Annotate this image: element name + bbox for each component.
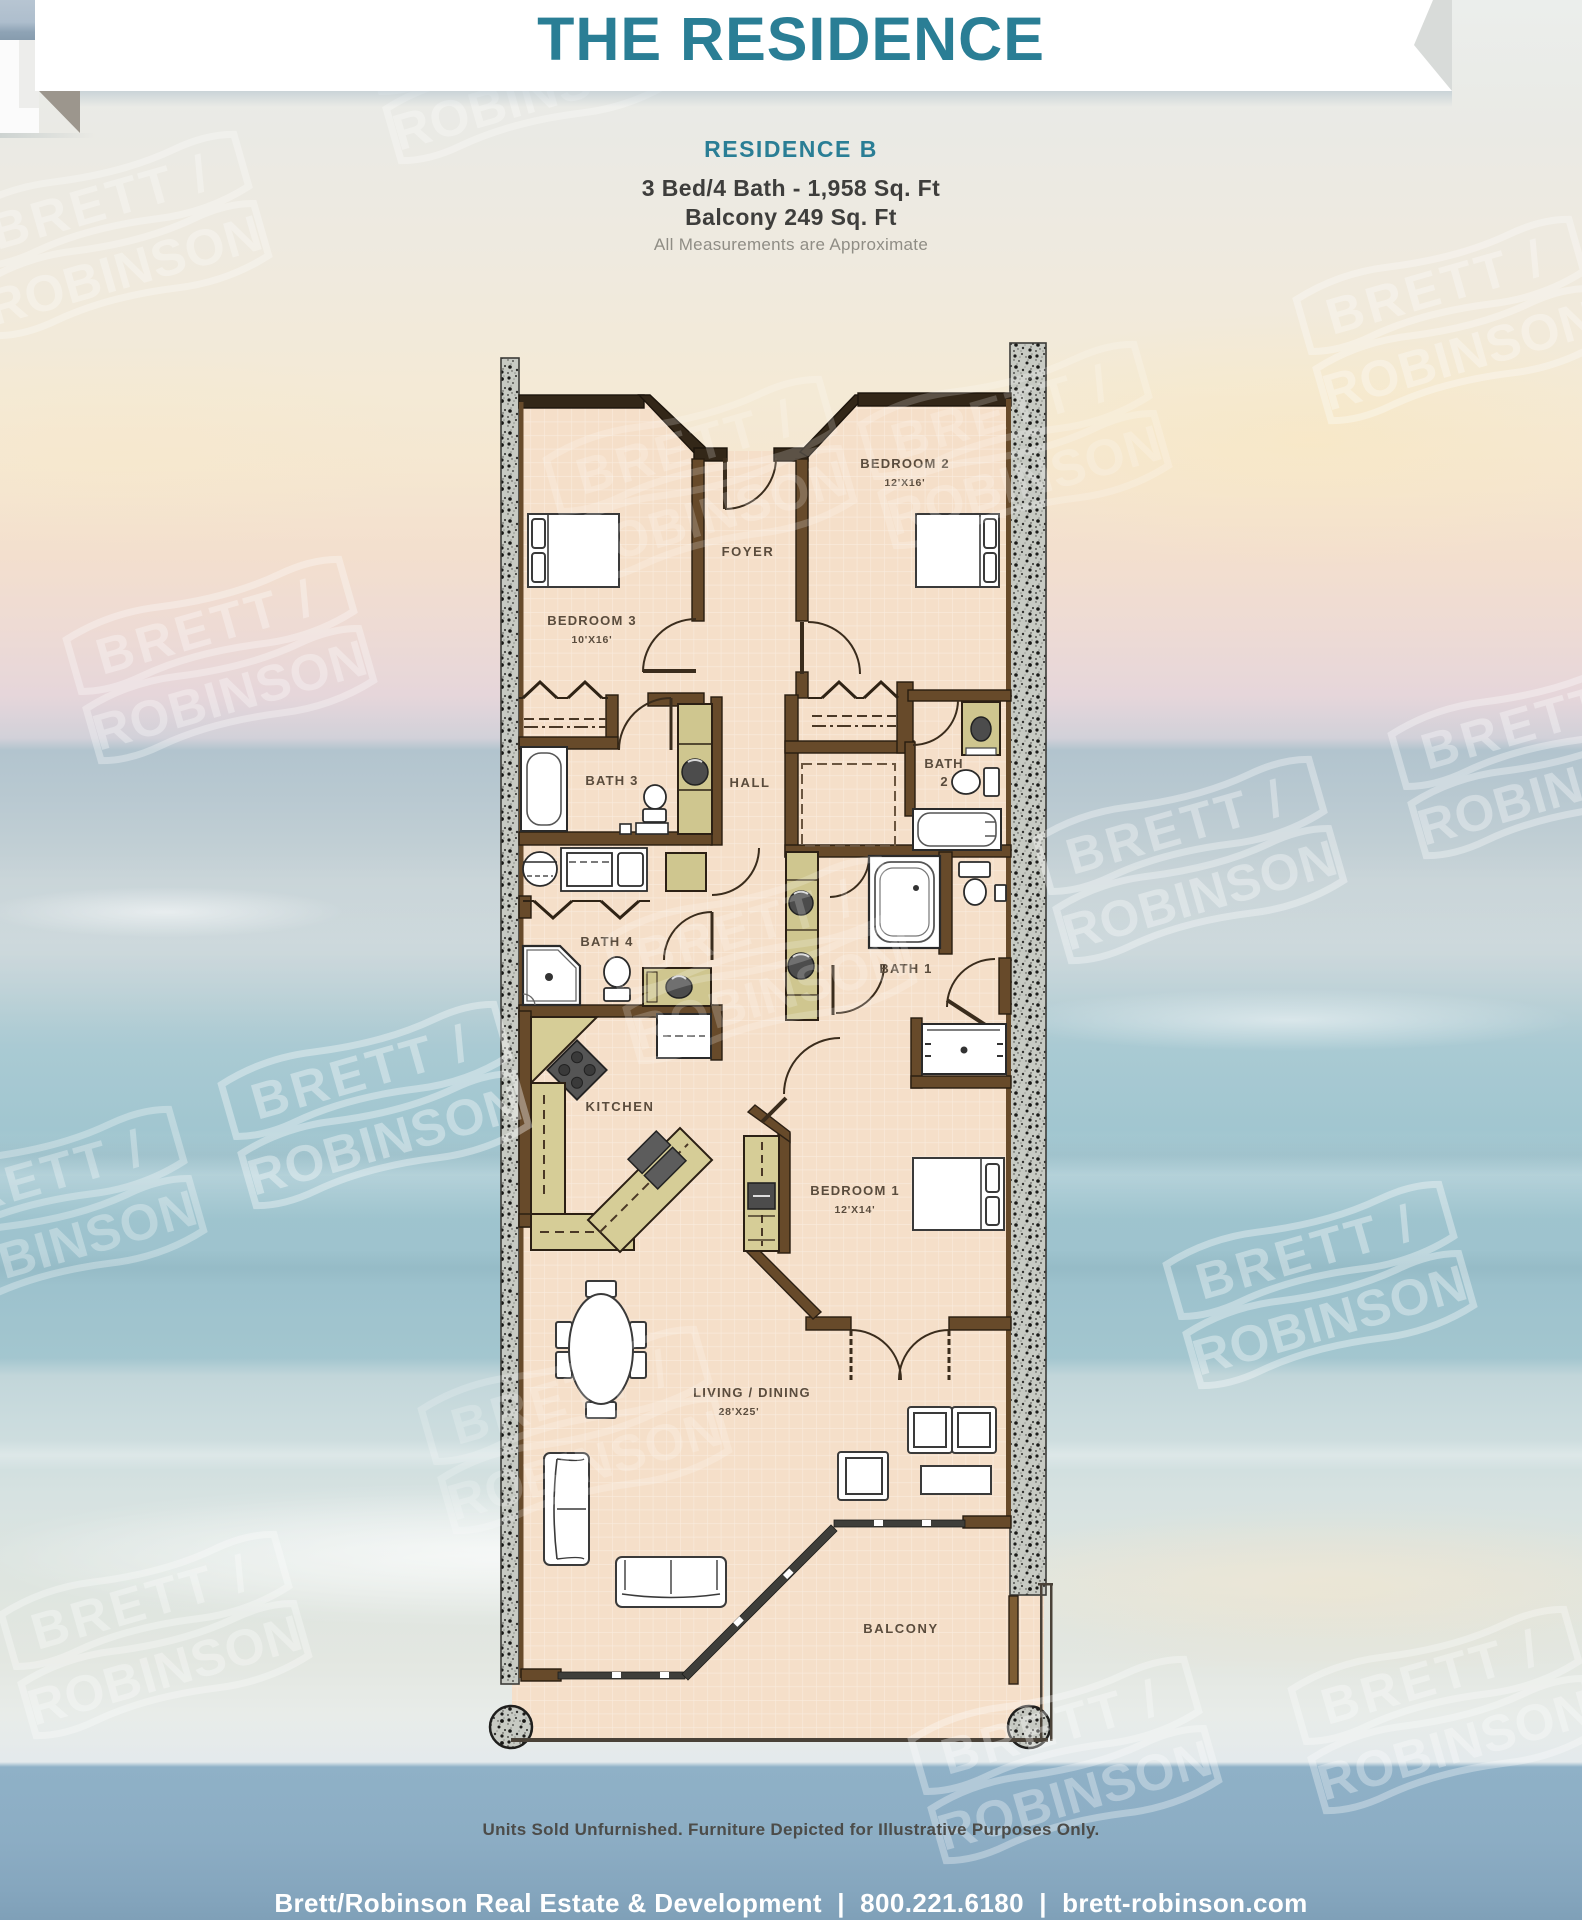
svg-text:BATH: BATH [924, 756, 963, 771]
svg-text:BALCONY: BALCONY [863, 1621, 938, 1636]
svg-text:BEDROOM 3: BEDROOM 3 [547, 613, 637, 628]
svg-text:2: 2 [940, 774, 947, 789]
svg-text:10'X16': 10'X16' [572, 634, 613, 646]
svg-text:12'X14': 12'X14' [835, 1204, 876, 1216]
svg-text:HALL: HALL [729, 775, 770, 790]
svg-text:BATH 3: BATH 3 [585, 773, 638, 788]
svg-text:BEDROOM 1: BEDROOM 1 [810, 1183, 900, 1198]
svg-text:FOYER: FOYER [722, 544, 775, 559]
svg-text:KITCHEN: KITCHEN [586, 1099, 655, 1114]
svg-text:28'X25': 28'X25' [719, 1406, 760, 1418]
